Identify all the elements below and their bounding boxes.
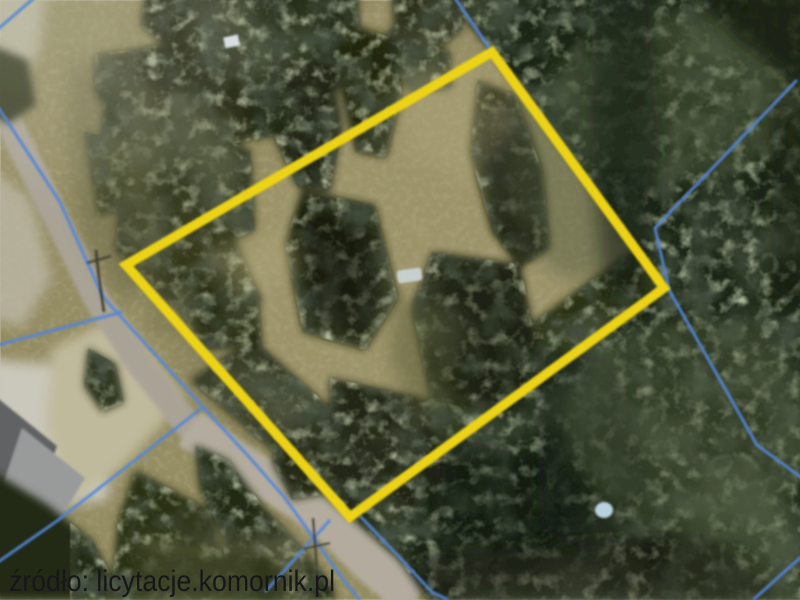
svg-text:źródło: licytacje.komornik.pl: źródło: licytacje.komornik.pl — [9, 565, 335, 598]
